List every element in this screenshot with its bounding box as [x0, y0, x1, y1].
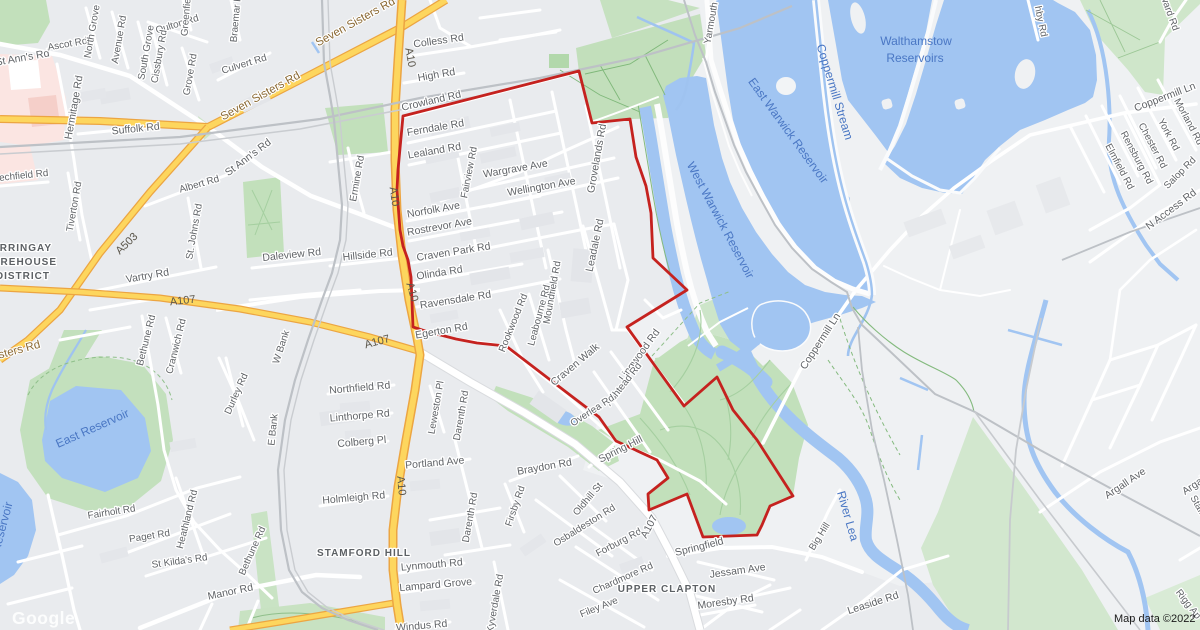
- svg-text:Map data ©2022: Map data ©2022: [1114, 613, 1196, 625]
- svg-text:STAMFORD HILL: STAMFORD HILL: [317, 548, 411, 559]
- svg-text:Walthamstow: Walthamstow: [880, 34, 952, 48]
- svg-text:A10: A10: [394, 475, 408, 496]
- svg-text:DISTRICT: DISTRICT: [0, 271, 50, 282]
- svg-text:UPPER CLAPTON: UPPER CLAPTON: [618, 584, 716, 595]
- svg-text:WAREHOUSE: WAREHOUSE: [0, 257, 57, 268]
- svg-text:HARRINGAY: HARRINGAY: [0, 243, 52, 254]
- svg-text:Google: Google: [12, 608, 75, 628]
- svg-text:Reservoirs: Reservoirs: [886, 51, 943, 65]
